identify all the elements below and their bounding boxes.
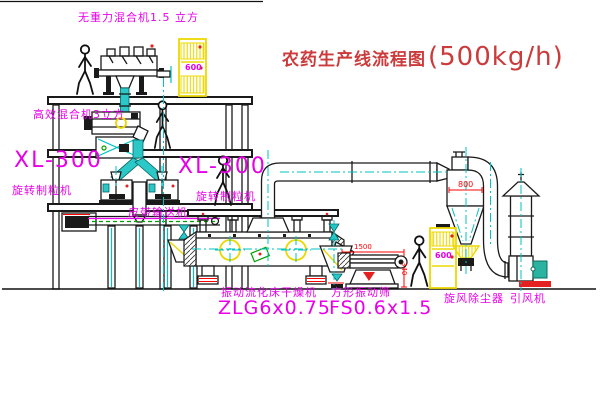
label-fan: 引风机: [510, 293, 546, 304]
dim-sieve-1500: 1500: [354, 244, 372, 251]
label-high-eff-mixer: 高效混合机3立方: [33, 109, 125, 120]
dim-cyclone-800: 800: [458, 181, 473, 189]
label-dryer-model: ZLG6x0.75: [218, 299, 331, 318]
label-cyclone: 旋风除尘器: [444, 293, 504, 304]
label-granulator-left-model: XL-300: [14, 150, 103, 172]
label-granulator-right-model: XL-300: [178, 156, 267, 178]
title-chinese: 农药生产线流程图: [282, 52, 426, 69]
granulator-right: [145, 172, 180, 204]
person-figure-4: [411, 236, 427, 286]
cad-drawing-canvas: 无重力混合机1.5 立方 农药生产线流程图 (500kg/h) 高效混合机3立方…: [0, 0, 600, 403]
label-gravityless-mixer: 无重力混合机1.5 立方: [78, 12, 199, 23]
title-capacity: (500kg/h): [428, 44, 564, 70]
cabinet-ground-marking: 600: [435, 252, 452, 260]
induced-draft-fan: [509, 256, 551, 287]
label-belt-conveyor: 皮带输送机: [128, 207, 188, 218]
label-granulator-right-name: 旋转制粒机: [196, 191, 256, 202]
label-sieve-model: FS0.6x1.5: [329, 299, 432, 318]
person-figure-1: [77, 45, 93, 94]
label-granulator-left-name: 旋转制粒机: [12, 185, 72, 196]
cabinet-top-marking: 600: [185, 64, 202, 72]
dim-sieve-340: 340: [400, 262, 407, 275]
dryer-mount-right: [306, 266, 326, 284]
square-vibrating-sieve-machine: [338, 249, 407, 288]
drawing-title: 农药生产线流程图 (500kg/h): [282, 44, 564, 70]
dryer-mount-left: [198, 266, 218, 284]
granulator-left: [99, 172, 134, 204]
